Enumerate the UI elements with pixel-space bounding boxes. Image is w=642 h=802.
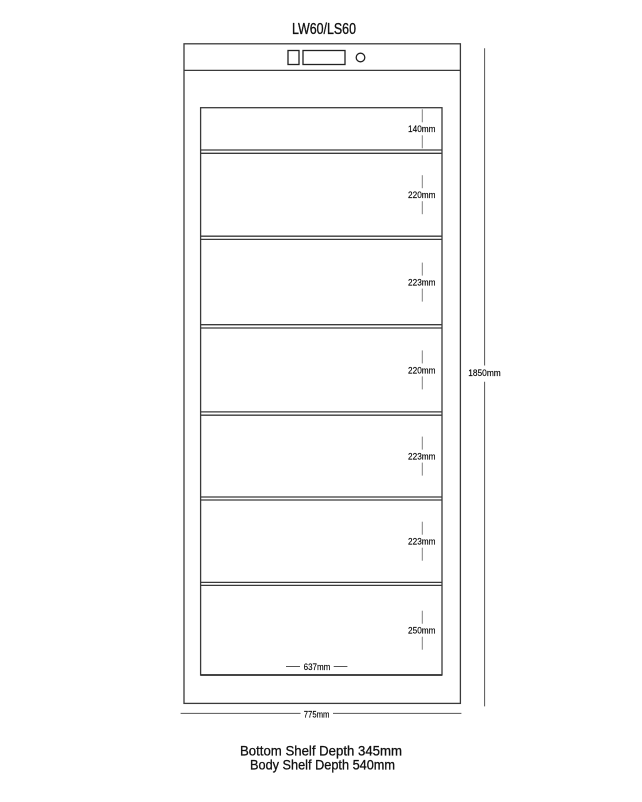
svg-text:Body Shelf Depth 540mm: Body Shelf Depth 540mm [250, 757, 395, 773]
svg-text:775mm: 775mm [304, 709, 330, 720]
svg-text:140mm: 140mm [408, 124, 436, 135]
svg-text:220mm: 220mm [408, 365, 436, 376]
svg-text:250mm: 250mm [408, 626, 436, 637]
svg-text:1850mm: 1850mm [468, 368, 501, 379]
svg-text:223mm: 223mm [408, 452, 436, 463]
svg-text:LW60/LS60: LW60/LS60 [292, 21, 356, 38]
svg-text:220mm: 220mm [408, 190, 436, 201]
svg-text:223mm: 223mm [408, 537, 436, 548]
svg-text:637mm: 637mm [304, 662, 331, 673]
svg-text:223mm: 223mm [408, 277, 436, 288]
